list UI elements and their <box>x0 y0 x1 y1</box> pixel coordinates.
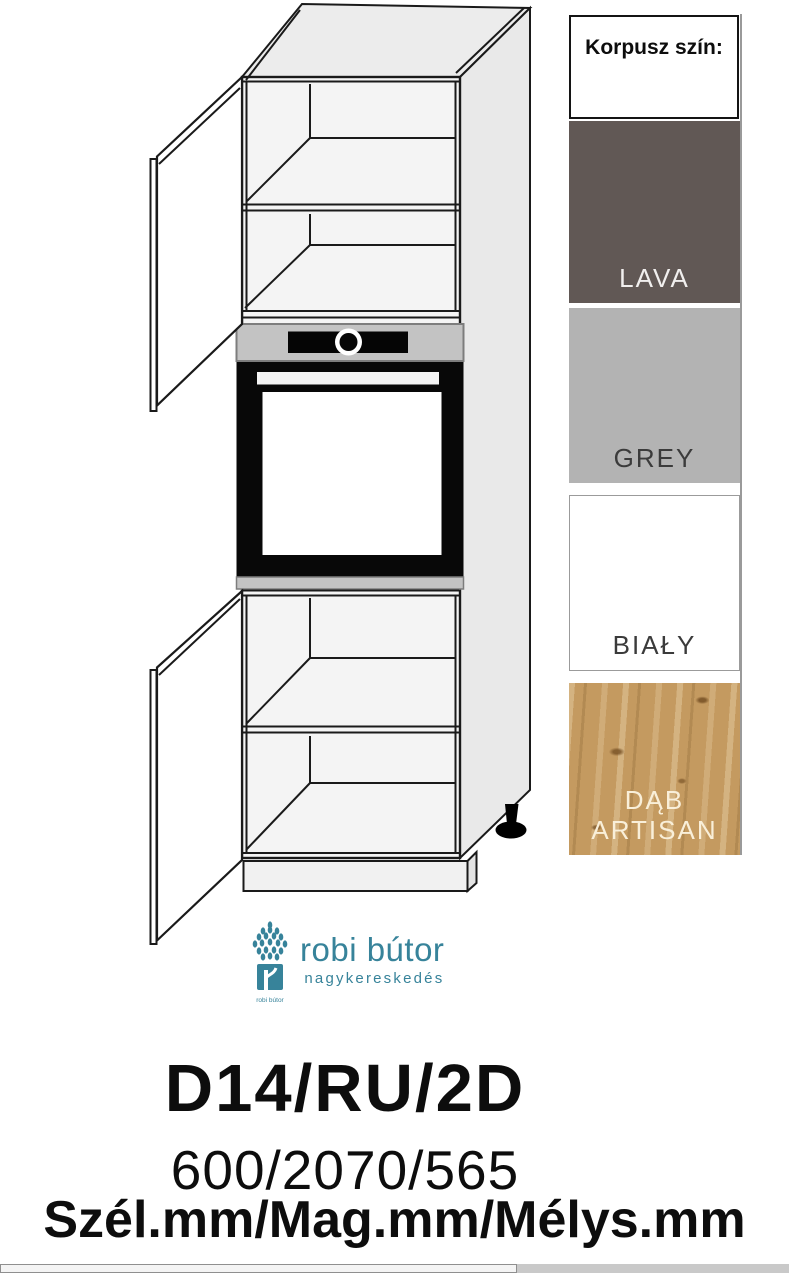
logo-text: robi bútor nagykereskedés <box>300 933 444 987</box>
oven-window <box>263 392 442 555</box>
swatch-bialy: BIAŁY <box>569 495 740 671</box>
oven-knob-icon <box>335 329 362 356</box>
swatch-lava: LAVA <box>569 121 740 303</box>
bottom-door <box>151 591 243 944</box>
cabinet-drawing <box>0 0 560 960</box>
built-in-oven <box>237 324 464 589</box>
logo: robi bútor robi bútor nagykereskedés <box>249 920 444 1008</box>
logo-name: robi bútor <box>300 933 444 966</box>
swatch-grey: GREY <box>569 308 740 483</box>
horizontal-scrollbar-thumb[interactable] <box>0 1264 517 1273</box>
logo-subtitle: nagykereskedés <box>304 970 444 987</box>
dimensions-legend: Szél.mm/Mag.mm/Mélys.mm <box>0 1190 789 1250</box>
swatch-label: BIAŁY <box>613 631 697 670</box>
oven-handle <box>257 372 439 385</box>
swatch-label: GREY <box>614 444 696 483</box>
logo-icon-caption: robi bútor <box>256 997 284 1004</box>
swatch-label: LAVA <box>619 264 690 303</box>
page: Korpusz szín: LAVA GREY BIAŁY DĄB ARTISA… <box>0 0 789 1273</box>
color-panel-title: Korpusz szín: <box>569 15 739 119</box>
panel-right-border <box>740 14 742 855</box>
swatch-label: DĄB ARTISAN <box>569 786 740 855</box>
tree-icon: robi bútor <box>249 920 291 1008</box>
horizontal-scrollbar-track[interactable] <box>0 1264 789 1273</box>
swatch-dab-artisan: DĄB ARTISAN <box>569 683 740 855</box>
product-code: D14/RU/2D <box>45 1050 645 1127</box>
